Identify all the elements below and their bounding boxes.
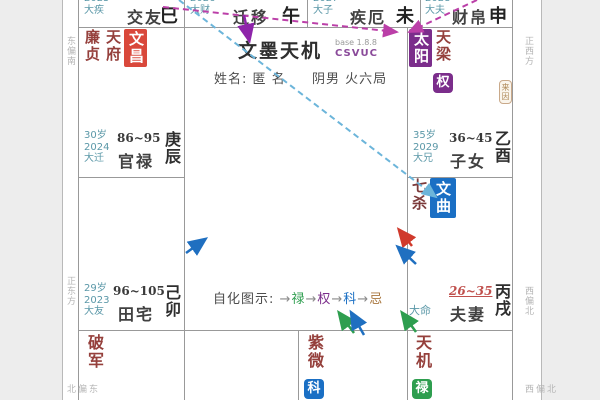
app-version-sub: CSVUC <box>335 48 378 59</box>
hua-lu-badge: 禄 <box>412 379 432 399</box>
palace-cell-chen[interactable]: 廉贞 天府 文昌 30岁 2024 大迁 86~95 官禄 庚辰 <box>79 28 184 177</box>
palace-name: 子女 <box>450 148 486 172</box>
palace-cell-yin[interactable]: 破军 <box>79 331 184 400</box>
direction-label-left-middle: 正东方 <box>64 276 75 306</box>
outer-left-line <box>62 0 63 400</box>
palace-cell-wei[interactable]: 2027 大子 疾厄 未 <box>308 0 420 27</box>
star-qisha: 七杀 <box>409 178 429 212</box>
gender-value: 阴男 <box>312 72 340 87</box>
bureau-value: 火六局 <box>345 72 387 87</box>
direction-label-right-top: 正西方 <box>522 36 533 66</box>
palace-year: 2027 <box>313 0 338 5</box>
palace-stars: 天机 <box>411 334 433 370</box>
palace-name: 疾厄 <box>350 4 386 27</box>
palace-cell-zi[interactable]: 紫微 科 <box>299 331 407 400</box>
palace-da-limit: 大命 <box>409 305 431 317</box>
selfhua-legend: 自化图示: →禄→权→科→忌 <box>213 288 383 307</box>
palace-name: 官禄 <box>118 148 154 172</box>
chart-right-border <box>512 0 513 400</box>
legend-lu: 禄 <box>291 292 305 307</box>
palace-name: 交友 <box>127 4 163 27</box>
palace-cell-xu[interactable]: 七杀 文曲 26~35 大命 夫妻 丙戌 <box>408 178 512 330</box>
legend-arrow-3: → <box>331 292 343 307</box>
palace-meta: 30岁 2024 大迁 <box>84 130 109 165</box>
palace-age: 35岁 <box>413 130 438 142</box>
palace-age: 29岁 <box>84 283 109 295</box>
palace-cell-si[interactable]: 2025 大疾 交友 巳 <box>79 0 184 27</box>
legend-arrow-1: → <box>280 292 292 307</box>
center-panel: 文墨天机 base 1.8.8 CSVUC 姓名: 匿 名 阴男 火六局 自化图… <box>185 28 407 330</box>
star-ziwei: 紫微 <box>303 334 325 370</box>
star-tianliang: 天梁 <box>433 29 453 63</box>
palace-stars: 七杀 文曲 <box>409 178 456 218</box>
palace-stars: 廉贞 天府 文昌 <box>82 29 147 67</box>
palace-branch: 午 <box>282 2 300 27</box>
hua-ke-badge: 科 <box>304 379 324 399</box>
palace-stars: 破军 <box>83 334 105 370</box>
palace-cell-you[interactable]: 太阳 天梁 权 来因 35岁 2029 大兄 36~45 子女 乙酉 <box>408 28 512 177</box>
star-tianji: 天机 <box>411 334 433 370</box>
palace-year: 2023 <box>84 295 109 307</box>
ziwei-chart-page: 东偏南 正东方 东偏北 正西方 西偏北 北偏西 2025 大疾 交友 巳 202… <box>0 0 600 400</box>
palace-cell-wu[interactable]: 2026 大财 迁移 午 <box>185 0 307 27</box>
palace-year-da: 2026 大财 <box>190 0 215 16</box>
palace-name: 田宅 <box>118 301 154 325</box>
palace-age-range: 86~95 <box>117 131 160 145</box>
palace-name: 夫妻 <box>450 301 486 325</box>
profile-info-row: 阴男 火六局 <box>312 68 387 87</box>
palace-da-limit: 大兄 <box>413 153 438 165</box>
palace-da-limit: 大友 <box>84 306 109 318</box>
legend-ke: 科 <box>343 292 357 307</box>
legend-arrow-4: → <box>357 292 369 307</box>
palace-age: 30岁 <box>84 130 109 142</box>
direction-label-right-middle: 西偏北 <box>522 286 533 316</box>
palace-branch: 未 <box>396 2 414 27</box>
star-wenchang: 文昌 <box>124 29 147 67</box>
star-wenqu: 文曲 <box>430 178 456 218</box>
palace-year-da: 2028 大夫 <box>425 0 450 16</box>
palace-meta: 29岁 2023 大友 <box>84 283 109 318</box>
star-pojun: 破军 <box>83 334 105 370</box>
palace-year-da: 2027 大子 <box>313 0 338 16</box>
app-version-sup: base 1.8.8 <box>335 38 377 47</box>
palace-branch: 申 <box>489 2 507 27</box>
profile-name-row: 姓名: 匿 名 <box>214 68 286 87</box>
app-title: 文墨天机 <box>238 36 322 63</box>
palace-meta: 35岁 2029 大兄 <box>413 130 438 165</box>
star-lianzhen: 廉贞 <box>82 29 102 63</box>
laiyin-tag: 来因 <box>499 80 512 104</box>
palace-stem-branch: 丙戌 <box>493 283 510 317</box>
palace-year: 2029 <box>413 142 438 154</box>
legend-quan: 权 <box>317 292 331 307</box>
palace-year: 2025 <box>84 0 109 5</box>
palace-da-limit: 大财 <box>190 5 215 17</box>
palace-branch: 巳 <box>160 2 178 27</box>
palace-age-range: 96~105 <box>113 284 165 298</box>
legend-label: 自化图示: <box>213 292 274 307</box>
direction-label-left-top: 东偏南 <box>64 36 75 66</box>
legend-arrow-2: → <box>305 292 317 307</box>
hua-quan-badge: 权 <box>433 73 453 93</box>
palace-year: 2028 <box>425 0 450 5</box>
palace-name: 迁移 <box>233 4 269 27</box>
name-label: 姓名: <box>214 72 247 87</box>
legend-ji: 忌 <box>369 292 383 307</box>
palace-stem-branch: 己卯 <box>163 284 180 318</box>
palace-stem-branch: 乙酉 <box>493 130 510 164</box>
name-value: 匿 名 <box>253 72 286 87</box>
palace-stars: 紫微 <box>303 334 325 370</box>
star-taiyang: 太阳 <box>409 29 432 67</box>
palace-da-limit: 大子 <box>313 5 338 17</box>
palace-cell-shen[interactable]: 2028 大夫 财帛 申 <box>421 0 512 27</box>
palace-year: 2026 <box>190 0 215 5</box>
palace-stars: 太阳 天梁 <box>409 29 453 67</box>
palace-cell-hai[interactable]: 天机 禄 <box>408 331 512 400</box>
palace-cell-mao[interactable]: 29岁 2023 大友 96~105 田宅 己卯 <box>79 178 184 330</box>
palace-age-range: 36~45 <box>449 131 492 145</box>
palace-name: 财帛 <box>452 4 488 27</box>
palace-da-limit: 大迁 <box>84 153 109 165</box>
palace-da-limit: 大疾 <box>84 5 109 17</box>
palace-da-limit: 大夫 <box>425 5 450 17</box>
palace-year-da: 2025 大疾 <box>84 0 109 16</box>
direction-label-right-bottom: 北偏西 <box>522 384 555 400</box>
palace-stem-branch: 庚辰 <box>163 131 180 165</box>
palace-age-range-current: 26~35 <box>449 284 492 298</box>
star-tianfu: 天府 <box>103 29 123 63</box>
outer-right-line <box>541 0 542 400</box>
palace-year: 2024 <box>84 142 109 154</box>
